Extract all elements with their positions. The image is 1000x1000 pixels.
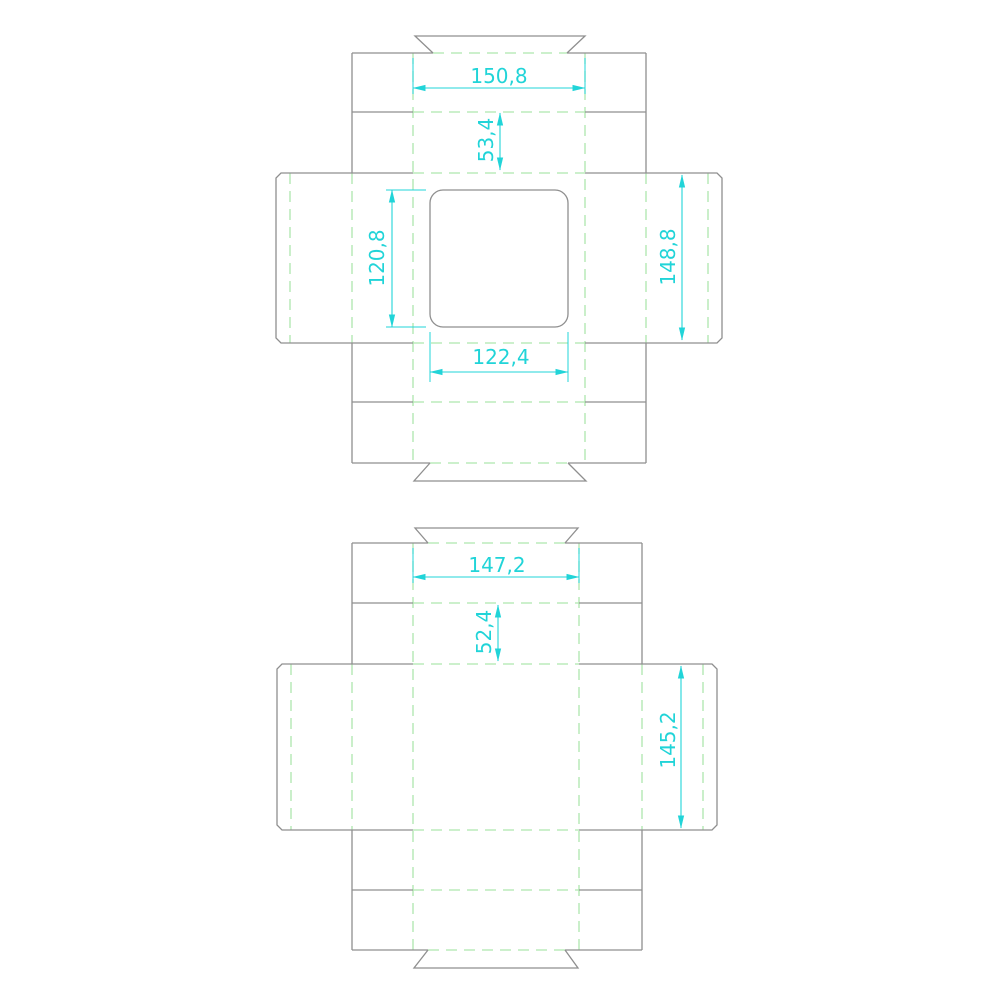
base-left-flap	[277, 664, 352, 830]
dim-base-top-flap-width: 147,2	[413, 548, 579, 583]
dim-lid-top-flap-width: 150,8	[413, 58, 585, 94]
dim-lid-panel-height: 148,8	[656, 175, 682, 340]
dieline-lid: 150,8 53,4 120,8 148,8 122,4	[276, 36, 722, 481]
dieline-base: 147,2 52,4 145,2	[277, 528, 717, 968]
dim-base-top-wall-depth: 52,4	[472, 605, 498, 661]
dim-label-lid-top-wall-depth: 53,4	[474, 118, 498, 163]
dim-lid-window-width: 122,4	[430, 332, 568, 382]
dieline-svg: 150,8 53,4 120,8 148,8 122,4	[0, 0, 1000, 1000]
dim-lid-window-height: 120,8	[365, 190, 426, 327]
dim-label-base-top-wall-depth: 52,4	[472, 610, 496, 655]
dim-label-lid-panel-height: 148,8	[656, 228, 680, 285]
dim-label-lid-top-flap-width: 150,8	[470, 64, 527, 88]
base-fold-lines	[291, 543, 703, 950]
lid-left-flap	[276, 173, 352, 343]
base-bottom-tuck-flap	[414, 950, 578, 968]
base-dimensions: 147,2 52,4 145,2	[413, 548, 681, 828]
dim-lid-top-wall-depth: 53,4	[474, 113, 500, 170]
lid-window-cutout	[430, 190, 568, 327]
dim-label-lid-window-height: 120,8	[365, 229, 389, 286]
base-top-tuck-flap	[415, 528, 578, 543]
lid-bottom-tuck-flap	[414, 463, 586, 481]
dim-label-lid-window-width: 122,4	[472, 345, 529, 369]
dim-base-panel-height: 145,2	[656, 666, 681, 828]
dieline-drawing-sheet: 150,8 53,4 120,8 148,8 122,4	[0, 0, 1000, 1000]
dim-label-base-top-flap-width: 147,2	[468, 553, 525, 577]
lid-top-tuck-flap	[415, 36, 585, 53]
base-cut-lines	[277, 528, 717, 968]
dim-label-base-panel-height: 145,2	[656, 711, 680, 768]
